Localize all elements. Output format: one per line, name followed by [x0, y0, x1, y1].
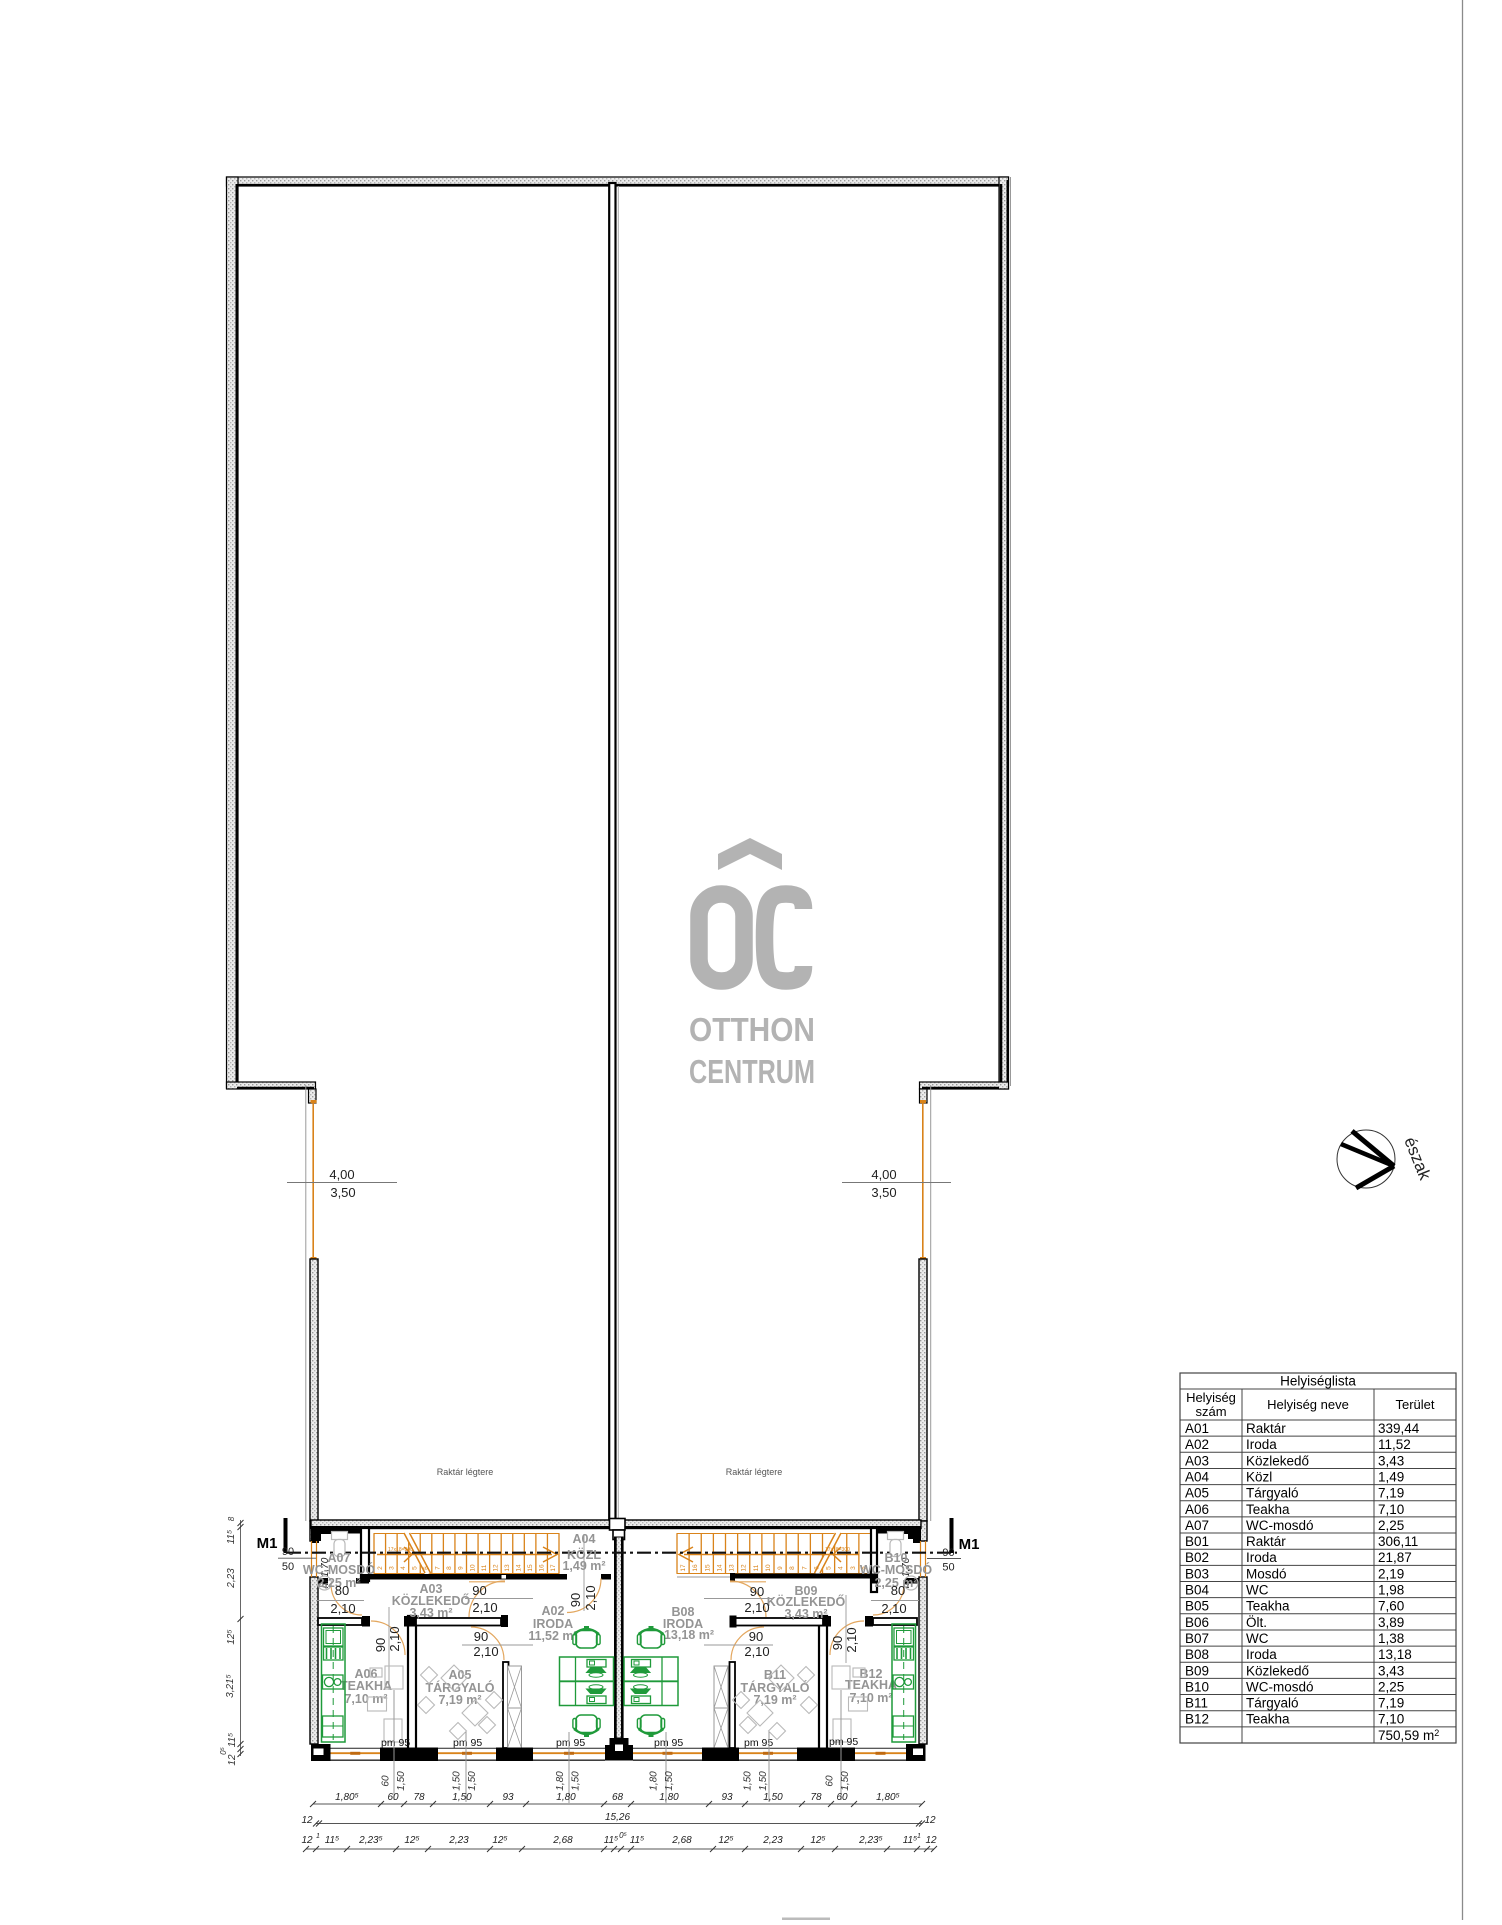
svg-text:8: 8	[789, 1566, 796, 1570]
svg-text:750,59 m2: 750,59 m2	[1378, 1728, 1439, 1743]
svg-text:B08: B08	[1185, 1647, 1209, 1662]
svg-text:90: 90	[942, 1547, 954, 1559]
svg-text:2,10: 2,10	[744, 1600, 769, 1615]
svg-text:1,38: 1,38	[1378, 1631, 1404, 1646]
svg-text:1,50: 1,50	[571, 1771, 582, 1791]
svg-text:B05: B05	[1185, 1599, 1209, 1614]
svg-text:A04: A04	[1185, 1469, 1210, 1484]
svg-text:11⁵: 11⁵	[630, 1835, 645, 1846]
svg-text:B06: B06	[1185, 1615, 1209, 1630]
svg-text:2,10: 2,10	[881, 1601, 906, 1616]
svg-text:11: 11	[753, 1564, 760, 1571]
svg-text:11: 11	[481, 1564, 488, 1571]
svg-text:17: 17	[550, 1564, 557, 1572]
svg-text:17: 17	[680, 1564, 687, 1572]
svg-text:0⁵: 0⁵	[219, 1746, 228, 1754]
svg-text:1,50: 1,50	[452, 1792, 472, 1803]
svg-text:1,80: 1,80	[659, 1792, 679, 1803]
svg-text:11,52 m²: 11,52 m²	[528, 1629, 577, 1643]
svg-text:1,49: 1,49	[1378, 1469, 1404, 1484]
svg-text:1: 1	[316, 1833, 320, 1840]
svg-text:B11: B11	[764, 1668, 786, 1682]
svg-text:7,10 m²: 7,10 m²	[849, 1691, 892, 1705]
svg-text:7,19: 7,19	[1378, 1696, 1404, 1711]
svg-text:90: 90	[749, 1629, 763, 1644]
svg-text:3,50: 3,50	[330, 1185, 355, 1200]
svg-text:A05: A05	[449, 1668, 472, 1682]
svg-text:50: 50	[282, 1561, 294, 1573]
svg-text:Teakha: Teakha	[1246, 1712, 1290, 1727]
svg-text:2,19: 2,19	[1378, 1566, 1404, 1581]
svg-text:1: 1	[917, 1833, 921, 1840]
svg-text:TEAKHA: TEAKHA	[845, 1678, 897, 1692]
svg-text:60: 60	[836, 1792, 848, 1803]
svg-text:pm 95: pm 95	[829, 1736, 858, 1748]
svg-text:12: 12	[227, 1754, 238, 1766]
svg-text:12: 12	[741, 1564, 748, 1572]
svg-text:B11: B11	[1185, 1696, 1208, 1711]
svg-text:14: 14	[516, 1564, 523, 1572]
svg-text:3,50: 3,50	[871, 1185, 896, 1200]
svg-text:11⁵: 11⁵	[903, 1835, 918, 1846]
svg-text:2: 2	[377, 1566, 384, 1570]
svg-text:Mosdó: Mosdó	[1246, 1566, 1287, 1581]
svg-text:2,23⁵: 2,23⁵	[358, 1835, 383, 1846]
svg-text:9: 9	[777, 1566, 784, 1570]
svg-text:Raktár légtere: Raktár légtere	[726, 1467, 783, 1477]
svg-text:M1: M1	[257, 1535, 278, 1552]
svg-text:CENTRUM: CENTRUM	[689, 1053, 815, 1090]
svg-text:5: 5	[411, 1566, 418, 1570]
svg-text:3,43 m²: 3,43 m²	[409, 1606, 452, 1620]
svg-text:15: 15	[704, 1564, 711, 1572]
svg-text:12: 12	[925, 1835, 937, 1846]
svg-text:7,10: 7,10	[1378, 1712, 1404, 1727]
svg-text:2,68: 2,68	[671, 1835, 692, 1846]
svg-text:3: 3	[850, 1566, 857, 1570]
svg-text:7: 7	[801, 1566, 808, 1570]
svg-text:78: 78	[413, 1792, 425, 1803]
svg-text:93: 93	[502, 1792, 514, 1803]
svg-text:2,23: 2,23	[762, 1835, 783, 1846]
svg-text:15,26: 15,26	[605, 1812, 630, 1823]
svg-text:Iroda: Iroda	[1246, 1647, 1277, 1662]
svg-text:B04: B04	[1185, 1583, 1210, 1598]
svg-text:7,10 m²: 7,10 m²	[344, 1692, 387, 1706]
svg-text:2,68: 2,68	[552, 1835, 573, 1846]
svg-text:80: 80	[891, 1583, 905, 1598]
svg-text:WC-MOSDÓ: WC-MOSDÓ	[860, 1562, 932, 1577]
svg-text:90: 90	[830, 1636, 845, 1650]
svg-text:60: 60	[381, 1775, 392, 1787]
svg-text:A02: A02	[1185, 1437, 1209, 1452]
svg-text:1,98: 1,98	[1378, 1583, 1404, 1598]
svg-text:B02: B02	[1185, 1550, 1209, 1565]
svg-text:WC-MOSDÓ: WC-MOSDÓ	[303, 1562, 375, 1577]
svg-text:pm 95: pm 95	[381, 1737, 410, 1749]
svg-text:13: 13	[504, 1564, 511, 1572]
svg-text:11⁵: 11⁵	[325, 1835, 340, 1846]
svg-text:12⁵: 12⁵	[718, 1835, 733, 1846]
svg-text:Közlekedő: Közlekedő	[1246, 1663, 1309, 1678]
svg-text:12⁵: 12⁵	[810, 1835, 825, 1846]
svg-text:2,23⁵: 2,23⁵	[858, 1835, 883, 1846]
svg-text:2,10: 2,10	[583, 1585, 598, 1610]
svg-text:szám: szám	[1195, 1404, 1226, 1419]
svg-text:93: 93	[721, 1792, 733, 1803]
svg-text:6: 6	[813, 1566, 820, 1570]
svg-text:8: 8	[227, 1516, 236, 1521]
svg-text:1,50: 1,50	[763, 1792, 783, 1803]
svg-text:13,18: 13,18	[1378, 1647, 1412, 1662]
svg-text:B09: B09	[1185, 1663, 1209, 1678]
svg-text:12: 12	[924, 1815, 936, 1826]
svg-text:11,52: 11,52	[1378, 1437, 1411, 1452]
svg-text:12: 12	[301, 1835, 313, 1846]
svg-text:16: 16	[539, 1564, 546, 1572]
svg-text:15: 15	[527, 1564, 534, 1572]
svg-text:pm 95: pm 95	[654, 1737, 683, 1749]
svg-text:TEAKHA: TEAKHA	[340, 1679, 392, 1693]
svg-text:1,50: 1,50	[743, 1771, 754, 1791]
svg-text:B01: B01	[1185, 1534, 1209, 1549]
svg-text:5: 5	[826, 1566, 833, 1570]
svg-text:Terület: Terület	[1395, 1397, 1434, 1412]
svg-text:3,43: 3,43	[1378, 1663, 1404, 1678]
svg-text:306,11: 306,11	[1378, 1534, 1418, 1549]
svg-text:A02: A02	[542, 1604, 565, 1618]
svg-text:Helyiség: Helyiség	[1186, 1390, 1236, 1405]
svg-text:4,00: 4,00	[871, 1167, 896, 1182]
svg-text:12⁵: 12⁵	[492, 1835, 507, 1846]
svg-text:Tárgyaló: Tárgyaló	[1246, 1486, 1299, 1501]
svg-text:Raktár: Raktár	[1246, 1534, 1286, 1549]
svg-text:1,80: 1,80	[556, 1792, 576, 1803]
svg-text:0⁵: 0⁵	[619, 1831, 627, 1840]
svg-text:90: 90	[373, 1638, 388, 1652]
svg-text:11⁵: 11⁵	[604, 1835, 619, 1846]
svg-text:13: 13	[729, 1564, 736, 1572]
svg-text:Közlekedő: Közlekedő	[1246, 1453, 1309, 1468]
svg-text:B12: B12	[1185, 1712, 1209, 1727]
svg-text:WC-mosdó: WC-mosdó	[1246, 1518, 1314, 1533]
svg-text:2,10: 2,10	[844, 1627, 859, 1652]
svg-text:12⁵: 12⁵	[404, 1835, 419, 1846]
svg-text:Teakha: Teakha	[1246, 1599, 1290, 1614]
svg-text:12: 12	[492, 1564, 499, 1572]
svg-text:pm 95: pm 95	[453, 1737, 482, 1749]
svg-text:A05: A05	[1185, 1486, 1209, 1501]
svg-text:12⁵: 12⁵	[226, 1629, 237, 1644]
svg-text:3: 3	[388, 1566, 395, 1570]
svg-text:7,10: 7,10	[1378, 1502, 1404, 1517]
svg-text:21,87: 21,87	[1378, 1550, 1412, 1565]
svg-text:Raktár légtere: Raktár légtere	[437, 1467, 494, 1477]
svg-text:4,00: 4,00	[329, 1167, 354, 1182]
svg-text:A03: A03	[1185, 1453, 1209, 1468]
svg-text:2,23: 2,23	[226, 1568, 237, 1589]
svg-text:1,80⁵: 1,80⁵	[335, 1792, 359, 1803]
svg-text:80: 80	[335, 1583, 349, 1598]
svg-text:8: 8	[446, 1566, 453, 1570]
svg-text:M1: M1	[959, 1536, 980, 1553]
svg-text:2,10: 2,10	[473, 1644, 498, 1659]
svg-text:WC: WC	[1246, 1631, 1269, 1646]
svg-text:11⁵: 11⁵	[227, 1733, 238, 1748]
svg-text:pm 95: pm 95	[556, 1737, 585, 1749]
svg-text:B07: B07	[1185, 1631, 1209, 1646]
svg-text:1,50: 1,50	[758, 1771, 769, 1791]
svg-text:1,80: 1,80	[555, 1771, 566, 1791]
svg-text:50: 50	[942, 1562, 954, 1574]
svg-text:90: 90	[472, 1583, 486, 1598]
svg-text:60: 60	[825, 1775, 836, 1787]
svg-text:339,44: 339,44	[1378, 1421, 1420, 1436]
svg-text:OTTHON: OTTHON	[689, 1011, 815, 1048]
svg-text:WC: WC	[1246, 1583, 1269, 1598]
svg-text:Ölt.: Ölt.	[1246, 1615, 1267, 1630]
svg-text:2,10: 2,10	[744, 1644, 769, 1659]
svg-text:3,89: 3,89	[1378, 1615, 1404, 1630]
svg-text:12: 12	[301, 1815, 313, 1826]
svg-text:B10: B10	[1185, 1679, 1209, 1694]
svg-text:90: 90	[750, 1584, 764, 1599]
svg-text:1,80: 1,80	[649, 1771, 660, 1791]
svg-text:16: 16	[692, 1564, 699, 1572]
svg-text:A06: A06	[1185, 1502, 1209, 1517]
svg-text:1,80⁵: 1,80⁵	[876, 1792, 900, 1803]
svg-text:WC-mosdó: WC-mosdó	[1246, 1679, 1314, 1694]
svg-text:Iroda: Iroda	[1246, 1550, 1277, 1565]
svg-text:90: 90	[282, 1546, 294, 1558]
svg-text:1,50: 1,50	[840, 1771, 851, 1791]
svg-text:B03: B03	[1185, 1566, 1209, 1581]
svg-text:2,25: 2,25	[1378, 1518, 1404, 1533]
svg-text:3,43 m²: 3,43 m²	[784, 1607, 827, 1621]
svg-text:78: 78	[810, 1792, 822, 1803]
svg-text:60: 60	[387, 1792, 399, 1803]
svg-text:1,50: 1,50	[452, 1771, 463, 1791]
svg-text:2,10: 2,10	[387, 1626, 402, 1651]
svg-text:68: 68	[612, 1792, 624, 1803]
svg-text:10: 10	[765, 1564, 772, 1572]
svg-text:2,10: 2,10	[330, 1601, 355, 1616]
svg-text:Helyiséglista: Helyiséglista	[1280, 1374, 1356, 1389]
svg-text:Tárgyaló: Tárgyaló	[1246, 1696, 1299, 1711]
svg-text:A07: A07	[1185, 1518, 1209, 1533]
svg-text:A01: A01	[1185, 1421, 1209, 1436]
svg-text:11⁵: 11⁵	[226, 1530, 237, 1545]
svg-text:4: 4	[838, 1566, 845, 1570]
svg-text:13,18 m²: 13,18 m²	[664, 1628, 714, 1642]
svg-text:10: 10	[469, 1564, 476, 1572]
svg-text:3,21⁵: 3,21⁵	[225, 1674, 236, 1698]
svg-text:9: 9	[458, 1566, 465, 1570]
svg-text:7: 7	[435, 1566, 442, 1570]
svg-text:Teakha: Teakha	[1246, 1502, 1290, 1517]
svg-text:Raktár: Raktár	[1246, 1421, 1286, 1436]
svg-text:4: 4	[400, 1566, 407, 1570]
svg-text:Iroda: Iroda	[1246, 1437, 1277, 1452]
svg-text:1,50: 1,50	[467, 1771, 478, 1791]
svg-text:1,50: 1,50	[664, 1771, 675, 1791]
svg-text:6: 6	[423, 1566, 430, 1570]
svg-text:2,23: 2,23	[448, 1835, 469, 1846]
svg-text:3,43: 3,43	[1378, 1453, 1404, 1468]
svg-text:90: 90	[474, 1629, 488, 1644]
svg-text:Helyiség neve: Helyiség neve	[1267, 1397, 1349, 1412]
svg-text:Közl: Közl	[1246, 1469, 1272, 1484]
svg-text:7,60: 7,60	[1378, 1599, 1404, 1614]
svg-text:2,25: 2,25	[1378, 1679, 1404, 1694]
svg-text:90: 90	[568, 1593, 583, 1607]
svg-text:1,50: 1,50	[396, 1771, 407, 1791]
svg-text:2,10: 2,10	[472, 1600, 497, 1615]
svg-text:14: 14	[716, 1564, 723, 1572]
svg-text:7,19: 7,19	[1378, 1486, 1404, 1501]
